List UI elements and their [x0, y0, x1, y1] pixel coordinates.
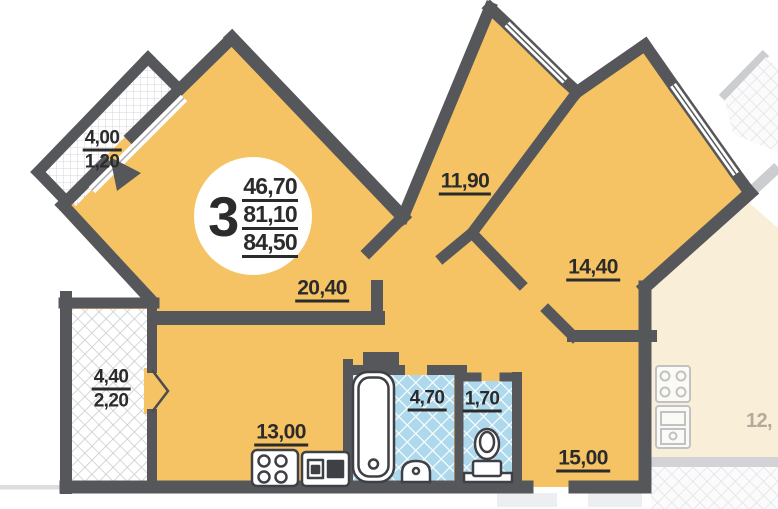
- area-label-balcony-left: 4,40 2,20: [92, 368, 131, 411]
- neighbor-sink-icon: [656, 406, 690, 448]
- area-label-living-room: 20,40: [295, 278, 349, 303]
- stove-icon: [252, 450, 298, 486]
- area-label-hall: 15,00: [556, 448, 610, 473]
- building-continuation-line: [0, 485, 66, 490]
- neighbor-balcony-bottom-hatch: [651, 467, 778, 509]
- stair-landing-hint: [497, 493, 557, 507]
- floor-plan: 4,00 1,20 3 46,70 81,10 84,50 20,40 11,9…: [0, 0, 778, 509]
- area-label-bedroom-middle: 11,90: [439, 171, 491, 196]
- bathroom-sink-icon: [402, 461, 430, 482]
- unit-room-count: 3: [208, 184, 237, 249]
- unit-areas: 46,70 81,10 84,50: [242, 174, 298, 258]
- bathtub-icon: [353, 372, 394, 482]
- area-label-bedroom-right: 14,40: [566, 257, 620, 282]
- unit-badge: 3 46,70 81,10 84,50: [194, 157, 312, 275]
- unit-area-usable: 81,10: [242, 202, 298, 230]
- unit-area-total: 84,50: [242, 230, 298, 258]
- area-label-balcony-top-left: 4,00 1,20: [83, 129, 122, 172]
- floor-plan-drawing: [0, 0, 778, 509]
- unit-area-living: 46,70: [242, 174, 298, 202]
- area-label-wc: 1,70: [463, 390, 502, 413]
- area-label-bathroom: 4,70: [408, 389, 447, 412]
- stair-landing-hint: [588, 493, 642, 507]
- area-label-kitchen: 13,00: [254, 422, 308, 447]
- kitchen-sink-icon: [302, 452, 349, 486]
- neighbor-stove-icon: [656, 366, 690, 402]
- area-label-neighbor: 12,: [746, 411, 772, 431]
- vent-shaft: [363, 352, 399, 370]
